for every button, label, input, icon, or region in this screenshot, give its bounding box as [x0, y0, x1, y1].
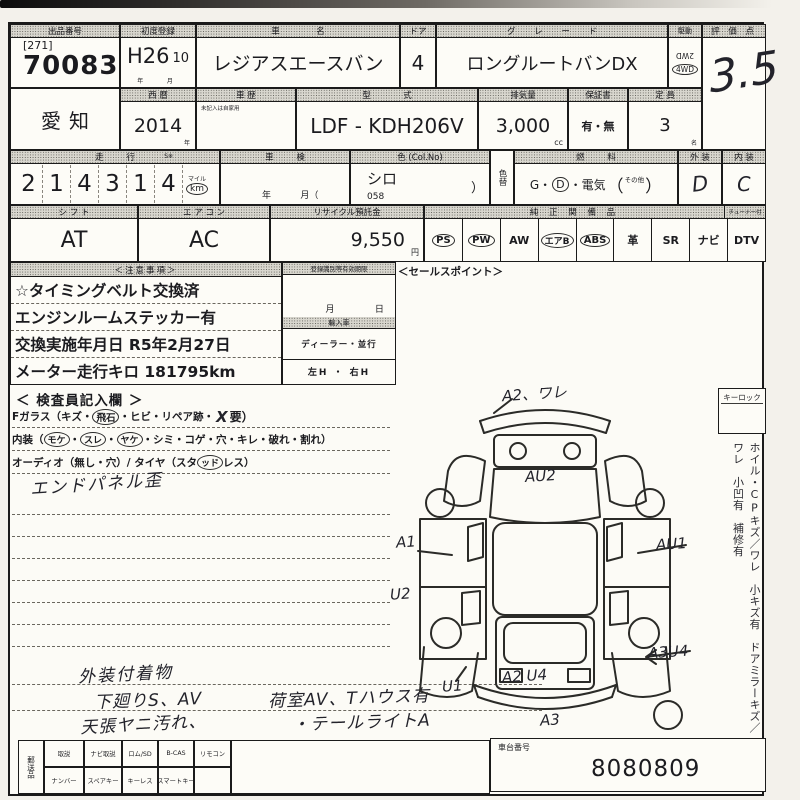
displacement-label: 排気量 — [479, 89, 567, 102]
score-box: 評 価 点 3.5 — [702, 24, 766, 150]
history-box: 車 歴 未記入は自家用 — [196, 88, 296, 150]
exterior-grade-handwritten: D — [691, 171, 710, 197]
notes-box: ＜注意事項＞ ☆タイミングベルト交換済 エンジンルームステッカー有 交換実施年月… — [10, 262, 282, 385]
blank-rule — [12, 626, 390, 647]
shaken-label: 車 検 — [221, 151, 349, 164]
mail-item-manual: 取説 — [44, 740, 84, 767]
grade-value: ロングルートバンDX — [466, 50, 637, 76]
audio-tire-line: オーディオ（無し・穴）/ タイヤ（スタッドレス） — [12, 452, 390, 474]
mail-item-smart-key: スマートキー — [158, 767, 194, 794]
first-registration-box: 初度登録 H26 10 年 月 — [120, 24, 196, 88]
grade-box: グ レ ー ド ロングルートバンDX — [436, 24, 668, 88]
mail-item-bcas: B-CAS — [158, 740, 194, 767]
handwritten-exterior-deposit: 外装付着物 — [77, 658, 173, 688]
color-label: 色 (Col.No) — [351, 151, 489, 164]
mileage-digit: 4 — [71, 165, 99, 203]
displacement-unit: cc — [554, 138, 563, 147]
drive-label: 駆動 — [669, 25, 701, 38]
fuel-gasoline: G・ — [530, 176, 551, 193]
region-value: 愛知 — [33, 105, 97, 134]
mileage-box: 走 行 S※ 2 1 4 3 1 4 マイル km — [10, 150, 220, 205]
mail-item-spare-key: スペアキー — [84, 767, 122, 794]
mail-item-number-plate: ナンバー — [44, 767, 84, 794]
first-reg-month: 10 — [172, 51, 189, 66]
auction-sheet-page: 出品番号 [271] 70083 初度登録 H26 10 年 月 車 名 レジア… — [0, 0, 800, 800]
mileage-unit-km-circled: km — [186, 183, 208, 195]
fuel-paren-open: （ — [607, 172, 624, 197]
warranty-label: 保証書 — [569, 89, 627, 102]
chassis-number-box: 車台番号 8080809 — [490, 738, 766, 792]
auction-no-box: 出品番号 [271] 70083 — [10, 24, 120, 88]
equipment-pw: PW — [463, 219, 501, 261]
aircon-label: エ ア コ ン — [139, 206, 269, 219]
color-no: 058 — [367, 192, 384, 202]
damage-annotation-a3u4: A3U4 — [647, 642, 688, 663]
first-reg-unit-year: 年 — [137, 76, 143, 85]
interior-grade-box: 内 装 C — [722, 150, 766, 205]
registration-validity-label: 登録識別等有効期限 — [283, 263, 395, 275]
auction-no-value: 70083 — [23, 52, 118, 81]
drive-box: 駆動 2WD 4WD — [668, 24, 702, 88]
fuel-other-label: その他 — [625, 174, 645, 184]
car-name-box: 車 名 レジアスエースバン — [196, 24, 400, 88]
capacity-unit: 名 — [691, 138, 697, 147]
first-registration-label: 初度登録 — [121, 25, 195, 38]
recycle-unit: 円 — [411, 247, 419, 258]
blank-rule — [12, 560, 390, 581]
model-value: LDF - KDH206V — [310, 114, 463, 138]
equipment-box: 純 正 関 備 品 チューナー付 PS PW AW エアB ABS 革 SR ナ… — [424, 205, 766, 262]
blank-rule — [12, 516, 390, 537]
year-box: 西 暦 2014 年 — [120, 88, 196, 150]
grade-label: グ レ ー ド — [437, 25, 667, 38]
color-value: シロ — [367, 168, 397, 189]
shaken-year-unit: 年 — [262, 188, 271, 201]
mail-items-label: 郵送品 — [18, 740, 44, 794]
equipment-aw: AW — [501, 219, 539, 261]
drive-2wd: 2WD — [676, 51, 694, 60]
equipment-sr: SR — [652, 219, 690, 261]
first-reg-year: H26 — [127, 44, 170, 68]
interior-grade-handwritten: C — [736, 172, 752, 197]
mileage-digit: 1 — [127, 165, 155, 203]
recycle-label: リサイクル預託金 — [271, 206, 423, 219]
color-paren: ） — [471, 177, 484, 196]
chassis-number-label: 車台番号 — [498, 742, 530, 753]
note-line: エンジンルームステッカー有 — [11, 304, 281, 331]
damage-annotation-u2: U2 — [389, 584, 411, 603]
damage-annotation-a3: A3 — [539, 710, 560, 729]
score-label: 評 価 点 — [703, 25, 765, 38]
blank-rule — [12, 582, 390, 603]
damage-annotation-a1: A1 — [395, 532, 416, 551]
mail-item-keyless: キーレス — [122, 767, 158, 794]
equipment-abs: ABS — [577, 219, 615, 261]
notes-header: ＜注意事項＞ — [11, 263, 281, 277]
interior-line: 内装（モケ・スレ・ヤケ・シミ・コゲ・穴・キレ・破れ・割れ） — [12, 429, 390, 451]
shaken-month-unit: 月（ — [300, 188, 318, 201]
warranty-value: 有・無 — [582, 118, 615, 134]
equipment-ps: PS — [425, 219, 463, 261]
car-damage-diagram: A2、ワレ AU2 A1 AU1 U2 A3U4 U1 A2 U4 A3 — [390, 385, 700, 737]
note-line: 交換実施年月日 R5年2月27日 — [11, 331, 281, 358]
model-label: 型 式 — [297, 89, 477, 102]
mileage-s-mark: S※ — [164, 153, 173, 160]
van-foldout-drawing — [390, 385, 700, 737]
fuel-diesel-circled: D — [552, 177, 568, 192]
import-type: ディーラー・並行 — [283, 329, 395, 360]
history-note: 未記入は自家用 — [201, 104, 240, 112]
year-value: 2014 — [134, 115, 182, 137]
scan-smudge — [0, 0, 772, 8]
equipment-leather: 革 — [614, 219, 652, 261]
exterior-label: 外 装 — [679, 151, 721, 164]
blank-rule — [12, 494, 390, 515]
color-change-box: 色替 — [490, 150, 514, 205]
equipment-label: 純 正 関 備 品 — [425, 206, 724, 218]
interior-label: 内 装 — [723, 151, 765, 164]
doors-label: ドア — [401, 25, 435, 38]
registration-validity-box: 登録識別等有効期限 月 日 輸入車 ディーラー・並行 左H ・ 右H — [282, 262, 396, 385]
shift-label: シ フ ト — [11, 206, 137, 219]
aircon-box: エ ア コ ン AC — [138, 205, 270, 262]
car-name-label: 車 名 — [197, 25, 399, 38]
fuel-box: 燃 料 G・ D ・電気 （ その他 ） — [514, 150, 678, 205]
history-label: 車 歴 — [197, 89, 295, 102]
fuel-paren-close: ） — [645, 172, 662, 197]
displacement-value: 3,000 — [496, 115, 550, 137]
equipment-airbag: エアB — [539, 219, 577, 261]
mileage-digit: 3 — [99, 165, 127, 203]
fglass-x-mark: X — [216, 408, 228, 426]
blank-rule — [12, 538, 390, 559]
interior-circled-2: スレ — [80, 432, 106, 447]
damage-annotation-au2: AU2 — [524, 466, 556, 486]
model-box: 型 式 LDF - KDH206V — [296, 88, 478, 150]
equipment-navi: ナビ — [690, 219, 728, 261]
year-unit: 年 — [184, 138, 190, 147]
interior-circled-1: モケ — [44, 432, 70, 447]
drive-4wd-circled: 4WD — [672, 64, 698, 75]
color-box: 色 (Col.No) シロ 058 ） — [350, 150, 490, 205]
recycle-value: 9,550 — [351, 229, 405, 251]
mileage-unit-mile: マイル — [188, 174, 206, 183]
mileage-digit: 1 — [43, 165, 71, 203]
equipment-dtv: DTV — [728, 219, 765, 261]
recycle-deposit-box: リサイクル預託金 9,550 円 — [270, 205, 424, 262]
fuel-label: 燃 料 — [515, 151, 677, 164]
mileage-digit: 4 — [155, 165, 183, 203]
sales-point-label: ＜セールスポイント＞ — [398, 264, 503, 279]
keylock-box: キーロック — [718, 388, 766, 434]
capacity-box: 定 員 3 名 — [628, 88, 702, 150]
bottom-empty-box — [231, 740, 490, 794]
fglass-line: Fガラス（キズ・飛石・ヒビ・リペア跡・X要） — [12, 406, 390, 428]
region-box: 愛知 — [10, 88, 120, 150]
note-line: ☆タイミングベルト交換済 — [11, 277, 281, 304]
mileage-label: 走 行 — [11, 151, 219, 164]
capacity-value: 3 — [659, 115, 670, 136]
first-reg-unit-month: 月 — [167, 76, 173, 85]
handle-position: 左H ・ 右H — [283, 359, 395, 384]
warranty-box: 保証書 有・無 — [568, 88, 628, 150]
auction-no-label: 出品番号 — [11, 25, 119, 38]
fuel-electric: ・電気 — [570, 176, 606, 193]
tuner-label: チューナー付 — [724, 206, 765, 218]
exterior-grade-box: 外 装 D — [678, 150, 722, 205]
color-change-label: 色替 — [491, 151, 513, 204]
car-name-value: レジアスエースバン — [212, 49, 383, 76]
mail-item-rom-sd: ロム/SD — [122, 740, 158, 767]
doors-value: 4 — [412, 51, 425, 75]
doors-box: ドア 4 — [400, 24, 436, 88]
interior-circled-3: ヤケ — [117, 432, 143, 447]
mail-item-remote: リモコン — [194, 740, 231, 767]
validity-day-unit: 日 — [375, 302, 384, 315]
damage-annotation-a2u4: A2 U4 — [501, 665, 547, 686]
mail-item-blank — [194, 767, 231, 794]
mail-item-navi-manual: ナビ取説 — [84, 740, 122, 767]
year-label: 西 暦 — [121, 89, 195, 102]
fglass-circled-option: 飛石 — [92, 409, 119, 425]
chassis-number-value: 8080809 — [591, 756, 700, 782]
damage-annotation-au1: AU1 — [655, 534, 687, 554]
damage-annotation-a2-ware: A2、ワレ — [501, 381, 567, 406]
import-car-label: 輸入車 — [283, 317, 395, 329]
shift-value: AT — [61, 228, 88, 253]
aircon-value: AC — [189, 228, 219, 253]
equipment-cells: PS PW AW エアB ABS 革 SR ナビ DTV — [425, 219, 765, 261]
damage-annotation-u1: U1 — [441, 676, 463, 695]
note-line: メーター走行キロ 181795km — [11, 358, 281, 384]
validity-month-unit: 月 — [326, 302, 335, 315]
shaken-box: 車 検 年 月（ — [220, 150, 350, 205]
capacity-label: 定 員 — [629, 89, 701, 102]
score-value-handwritten: 3.5 — [708, 41, 781, 103]
mileage-digit: 2 — [15, 165, 43, 203]
blank-rule — [12, 604, 390, 625]
displacement-box: 排気量 3,000 cc — [478, 88, 568, 150]
shift-box: シ フ ト AT — [10, 205, 138, 262]
keylock-label: キーロック — [721, 389, 763, 404]
right-margin-vertical-note: ホイル・CPキズ／ワレ 小キズ有 ドアミラーキズ／ワレ 小凹有 補修有 — [704, 442, 762, 738]
tire-circled-option: ッド — [197, 455, 223, 470]
